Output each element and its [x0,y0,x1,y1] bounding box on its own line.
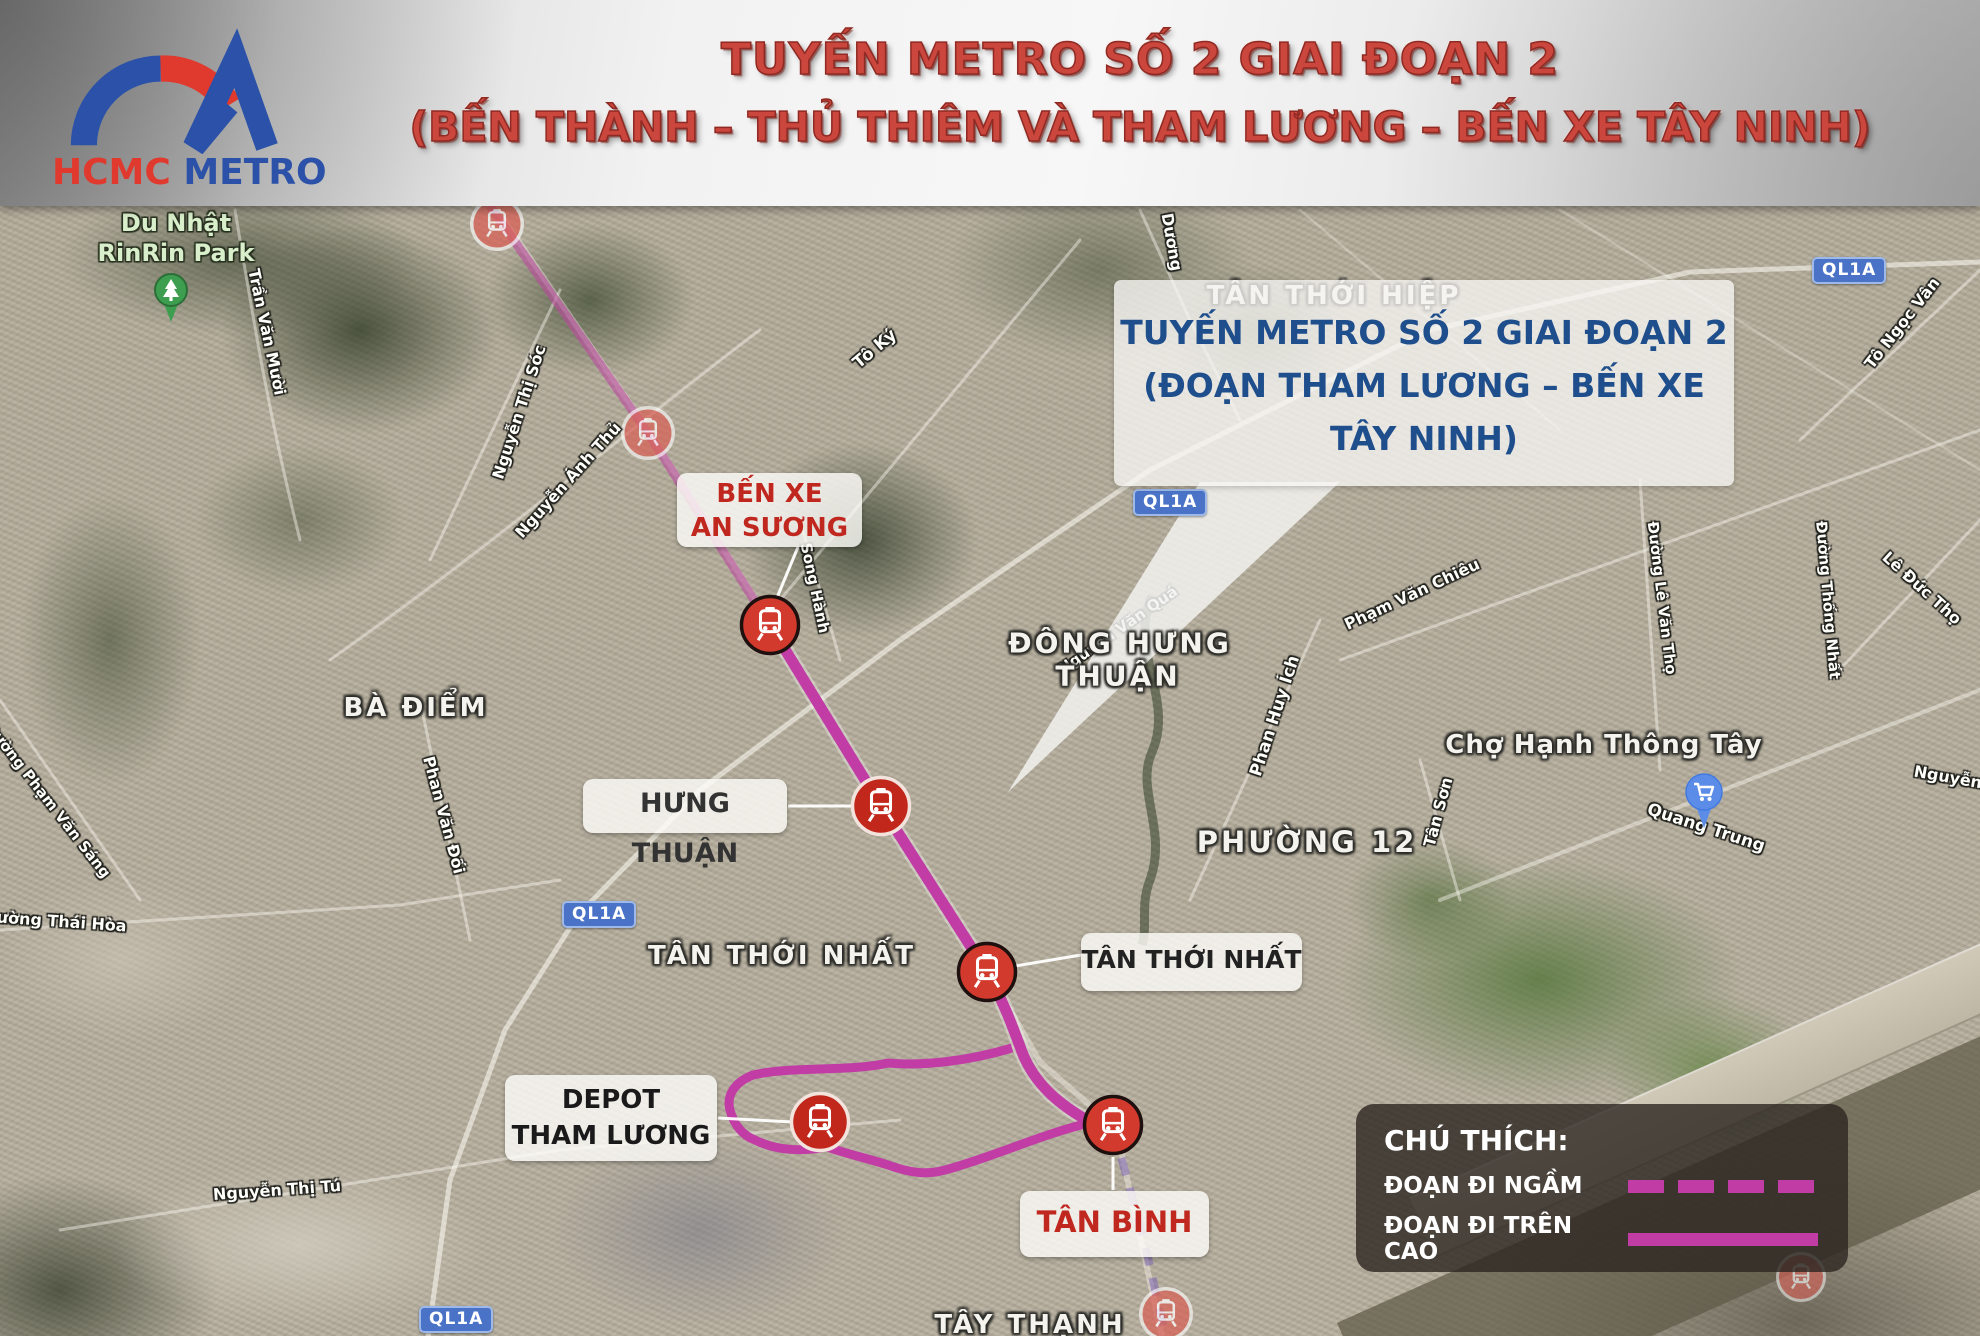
area-label-phuong-12: PHƯỜNG 12 [1197,825,1418,859]
station-marker-tan-thoi-nhat [959,944,1016,1001]
station-marker-hung-thuan [853,778,910,835]
station-label-depot-tham-luong: DEPOT THAM LƯƠNG [505,1075,717,1161]
metro-line-elevated [770,625,1113,1125]
station-label-tan-binh: TÂN BÌNH [1020,1191,1209,1257]
poi-label-cho-hanh-thong-tay: Chợ Hạnh Thông Tây [1445,730,1763,760]
legend-label-underground: ĐOẠN ĐI NGẦM [1384,1173,1583,1199]
title-line2: (BẾN THÀNH – THỦ THIÊM VÀ THAM LƯƠNG – B… [330,103,1950,151]
station-label-hung-thuan: HƯNG THUẬN [583,779,787,833]
legend-label-elevated: ĐOẠN ĐI TRÊN CAO [1384,1213,1628,1265]
callout-box: TUYẾN METRO SỐ 2 GIAI ĐOẠN 2 (ĐOẠN THAM … [1114,280,1734,486]
cart-icon [1682,772,1726,828]
legend: CHÚ THÍCH: ĐOẠN ĐI NGẦM ĐOẠN ĐI TRÊN CAO [1356,1104,1848,1272]
logo-text-hcmc: HCMC [52,152,171,193]
station-label-line2: AN SƯƠNG [677,511,862,545]
station-marker-tan-binh [1085,1097,1142,1154]
callout-line2: (ĐOẠN THAM LƯƠNG – BẾN XE [1114,359,1734,412]
area-label-dong-hung-thuan-line2: THUẬN [1055,660,1180,693]
title-line1: TUYẾN METRO SỐ 2 GIAI ĐOẠN 2 [330,34,1950,85]
logo-text-metro: METRO [183,152,326,193]
highway-badge-ql1a-ne: QL1A [1812,257,1886,284]
station-label-tan-thoi-nhat: TÂN THỚI NHẤT [1081,933,1302,991]
park-label-line2: RinRin Park [98,238,255,268]
highway-badge-ql1a-center: QL1A [1133,489,1207,516]
legend-solid-line-sample [1628,1233,1818,1246]
road-truong-chinh [497,210,1162,1336]
station-marker-depot-tham-luong [792,1094,849,1151]
park-label-line1: Du Nhật [98,208,255,238]
hcmc-metro-logo: HCMC METRO [52,4,292,204]
page-title: TUYẾN METRO SỐ 2 GIAI ĐOẠN 2 (BẾN THÀNH … [330,0,1950,206]
metro-map-slide: BÀ ĐIỂM TÂN THỚI HIỆP ĐÔNG HƯNG THUẬN PH… [0,0,1980,1336]
poi-label-rinrin-park: Du Nhật RinRin Park [98,208,255,268]
area-label-tay-thanh: TÂY THẠNH [934,1310,1125,1336]
station-label-line2: THAM LƯƠNG [505,1118,717,1154]
logo-text: HCMC METRO [52,152,292,193]
area-label-tan-thoi-nhat: TÂN THỚI NHẤT [648,941,916,971]
legend-row-underground: ĐOẠN ĐI NGẦM [1384,1173,1818,1199]
station-label-line1: DEPOT [505,1082,717,1118]
hcmc-metro-logo-icon [52,4,292,154]
tree-icon [151,270,191,322]
station-marker-an-suong [742,597,799,654]
callout-line3: TÂY NINH) [1114,412,1734,465]
area-label-ba-diem: BÀ ĐIỂM [343,693,488,723]
station-label-line1: BẾN XE [677,477,862,511]
park-pin [151,270,191,326]
legend-title: CHÚ THÍCH: [1384,1124,1818,1157]
station-marker-faded-2 [621,406,675,460]
callout-line1: TUYẾN METRO SỐ 2 GIAI ĐOẠN 2 [1114,306,1734,359]
area-label-dong-hung-thuan-line1: ĐÔNG HƯNG [1008,627,1232,660]
station-label-ben-xe-an-suong: BẾN XE AN SƯƠNG [677,473,862,547]
legend-dashed-line-sample [1628,1180,1818,1193]
highway-badge-ql1a-west: QL1A [562,901,636,928]
legend-row-elevated: ĐOẠN ĐI TRÊN CAO [1384,1213,1818,1265]
station-marker-faded-3 [1139,1287,1193,1336]
header-banner: HCMC METRO TUYẾN METRO SỐ 2 GIAI ĐOẠN 2 … [0,0,1980,206]
market-pin [1682,772,1726,832]
highway-badge-ql1a-sw: QL1A [419,1306,493,1333]
